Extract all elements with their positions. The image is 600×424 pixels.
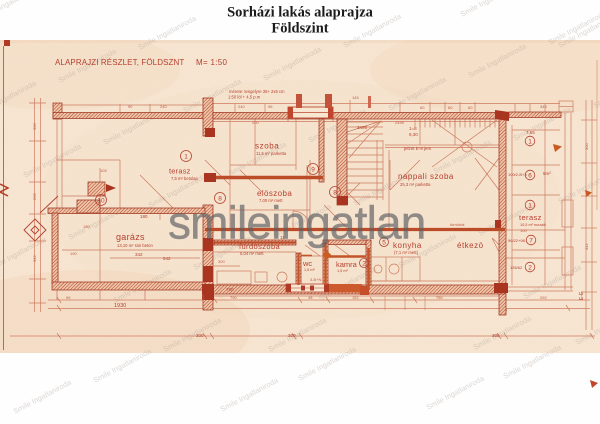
svg-text:11,5 m² parketta: 11,5 m² parketta xyxy=(256,151,287,156)
svg-text:180: 180 xyxy=(83,224,90,229)
svg-text:96: 96 xyxy=(268,104,273,109)
svg-text:10,5 m² mozaik: 10,5 m² mozaik xyxy=(520,223,546,227)
svg-text:300: 300 xyxy=(218,259,225,264)
svg-text:Földszint: Földszint xyxy=(271,21,328,37)
svg-text:smileingatlan: smileingatlan xyxy=(168,197,425,249)
svg-text:300: 300 xyxy=(584,143,589,150)
svg-text:135/62: 135/62 xyxy=(510,265,523,270)
svg-text:1:50 löl + 4,5 p.m: 1:50 löl + 4,5 p.m xyxy=(228,95,261,100)
svg-text:1=8: 1=8 xyxy=(409,126,417,131)
svg-text:jelzet E-9 jem: jelzet E-9 jem xyxy=(403,146,432,151)
svg-text:342: 342 xyxy=(584,243,589,250)
svg-text:mérete: tengelyre 35+ 2x5 cm: mérete: tengelyre 35+ 2x5 cm xyxy=(229,89,285,94)
svg-text:Sorházi lakás alaprajza: Sorházi lakás alaprajza xyxy=(227,5,374,21)
svg-text:292: 292 xyxy=(540,295,547,300)
svg-text:7,65: 7,65 xyxy=(526,130,535,135)
svg-text:2495: 2495 xyxy=(357,125,368,130)
svg-text:342: 342 xyxy=(135,252,143,257)
svg-text:1: 1 xyxy=(528,203,532,210)
svg-text:szoba: szoba xyxy=(255,142,279,151)
svg-text:790: 790 xyxy=(230,295,237,300)
svg-text:1: 1 xyxy=(184,154,188,161)
svg-text:240: 240 xyxy=(160,104,167,109)
svg-text:9: 9 xyxy=(311,167,315,174)
svg-text:145: 145 xyxy=(352,95,359,100)
svg-text:60: 60 xyxy=(468,105,473,110)
svg-text:180: 180 xyxy=(140,214,148,219)
svg-text:terasz: terasz xyxy=(169,167,191,176)
svg-text:265: 265 xyxy=(32,193,37,200)
svg-text:780: 780 xyxy=(436,295,443,300)
svg-text:1,5 m²: 1,5 m² xyxy=(304,268,315,272)
svg-text:152: 152 xyxy=(352,295,359,300)
svg-text:542: 542 xyxy=(163,256,171,261)
svg-text:13,10 m² sim beton: 13,10 m² sim beton xyxy=(117,243,154,248)
svg-text:100/2-B+3: 100/2-B+3 xyxy=(508,172,527,177)
svg-text:1,5 m²: 1,5 m² xyxy=(337,269,348,273)
svg-text:5m²: 5m² xyxy=(543,171,551,176)
svg-text:6: 6 xyxy=(528,173,532,180)
svg-text:ALAPRAJZI RÉSZLET, FÖLDSZNT: ALAPRAJZI RÉSZLET, FÖLDSZNT xyxy=(55,58,184,67)
svg-text:3-B+N: 3-B+N xyxy=(310,277,322,282)
svg-text:100: 100 xyxy=(520,228,527,233)
svg-text:240: 240 xyxy=(238,104,245,109)
svg-text:wc: wc xyxy=(302,259,312,268)
svg-text:kamra: kamra xyxy=(336,260,358,269)
svg-text:2495: 2495 xyxy=(395,120,405,125)
svg-text:8: 8 xyxy=(333,190,337,197)
svg-text:1: 1 xyxy=(528,139,532,146)
svg-text:60: 60 xyxy=(420,105,425,110)
svg-text:M= 1:50: M= 1:50 xyxy=(196,58,227,67)
svg-text:200: 200 xyxy=(252,120,259,125)
svg-text:60: 60 xyxy=(448,105,453,110)
svg-text:300: 300 xyxy=(196,333,204,338)
svg-text:300: 300 xyxy=(32,123,37,130)
svg-text:345: 345 xyxy=(540,104,547,109)
svg-text:48: 48 xyxy=(308,295,313,300)
svg-text:nappali szoba: nappali szoba xyxy=(398,172,454,181)
svg-text:9,30: 9,30 xyxy=(409,132,418,137)
svg-text:tömörfal: tömörfal xyxy=(450,222,465,227)
svg-text:étkezö: étkezö xyxy=(457,241,484,250)
svg-text:terasz: terasz xyxy=(519,213,542,222)
svg-text:2: 2 xyxy=(362,261,366,268)
svg-text:96/22+98: 96/22+98 xyxy=(508,238,526,243)
svg-text:90: 90 xyxy=(128,104,133,109)
svg-text:95: 95 xyxy=(66,295,71,300)
svg-text:7,5 m² betolap: 7,5 m² betolap xyxy=(171,176,198,181)
svg-text:1930: 1930 xyxy=(114,303,126,309)
svg-text:E-E: E-E xyxy=(579,291,585,300)
svg-text:7: 7 xyxy=(529,238,533,245)
svg-text:(7,1 m² mett): (7,1 m² mett) xyxy=(394,250,419,255)
svg-text:190: 190 xyxy=(70,251,77,256)
svg-text:342: 342 xyxy=(32,255,37,262)
svg-text:garázs: garázs xyxy=(116,232,145,242)
svg-text:2: 2 xyxy=(528,265,532,272)
svg-text:10: 10 xyxy=(97,198,105,205)
svg-text:25,3 m² parketta: 25,3 m² parketta xyxy=(400,182,431,187)
svg-text:790: 790 xyxy=(226,287,234,292)
svg-text:5,04 m² mett: 5,04 m² mett xyxy=(240,251,264,256)
svg-text:105: 105 xyxy=(100,168,107,173)
